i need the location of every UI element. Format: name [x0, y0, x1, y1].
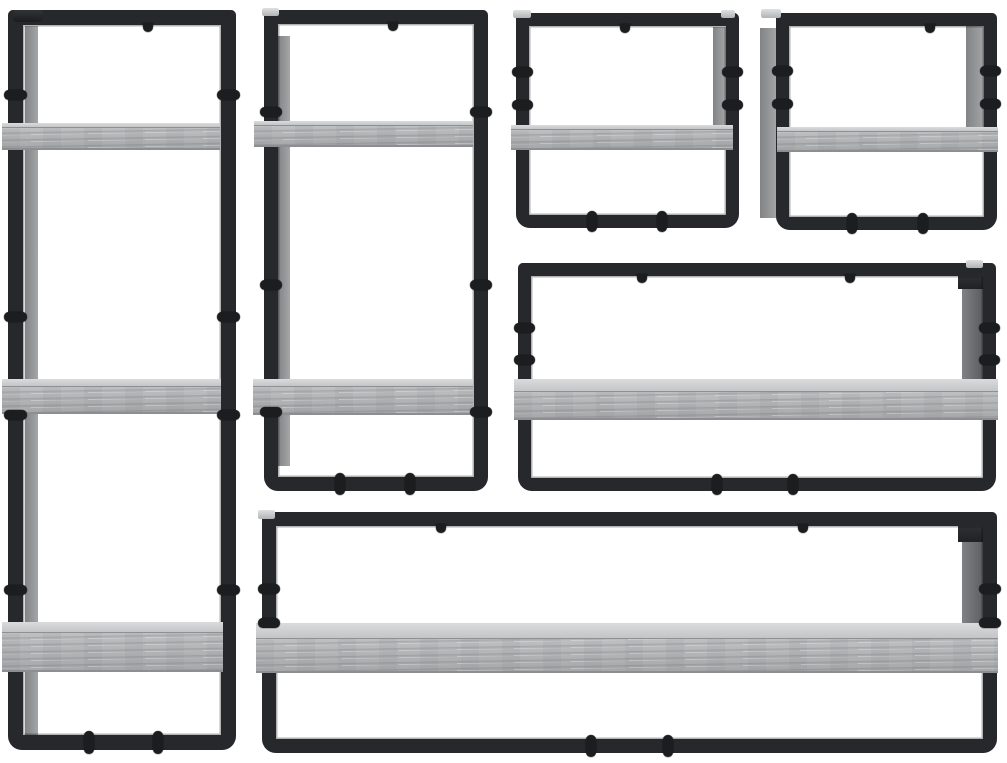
mounting-bolt [258, 584, 280, 594]
mounting-bolt [979, 584, 1001, 594]
shelf-board-front-face [256, 639, 998, 673]
mounting-bolt [663, 735, 673, 757]
mounting-bolt [258, 618, 280, 628]
long-shelf-unit [0, 0, 1007, 763]
mounting-bolt [586, 735, 596, 757]
product-photo [0, 0, 1007, 763]
bracket-tab [258, 510, 275, 519]
shelf-board [256, 623, 998, 673]
mounting-bolt [979, 618, 1001, 628]
shelf-board-top-face [256, 623, 998, 639]
